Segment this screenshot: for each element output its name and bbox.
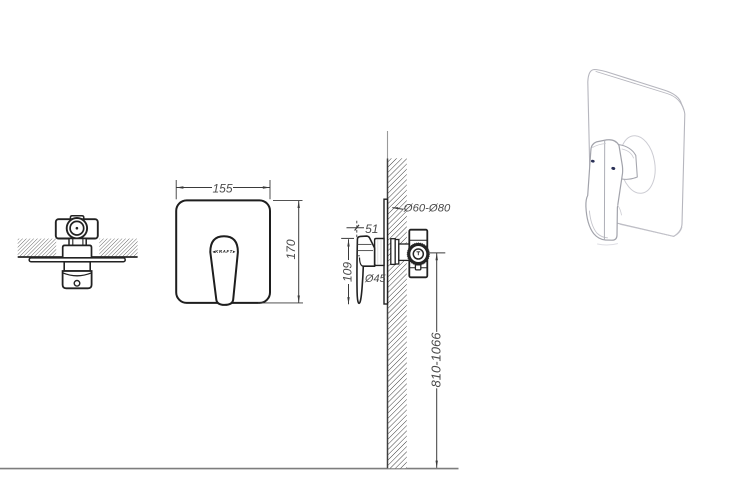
svg-text:170: 170 [284, 239, 298, 259]
svg-text:155: 155 [212, 181, 232, 195]
svg-text:51: 51 [365, 222, 378, 236]
svg-text:Ø60-Ø80: Ø60-Ø80 [403, 202, 451, 214]
svg-text:◂KRAFT▸: ◂KRAFT▸ [212, 249, 235, 254]
svg-text:Ø45: Ø45 [364, 273, 387, 285]
svg-text:109: 109 [340, 262, 354, 282]
svg-text:810-1066: 810-1066 [428, 332, 443, 388]
